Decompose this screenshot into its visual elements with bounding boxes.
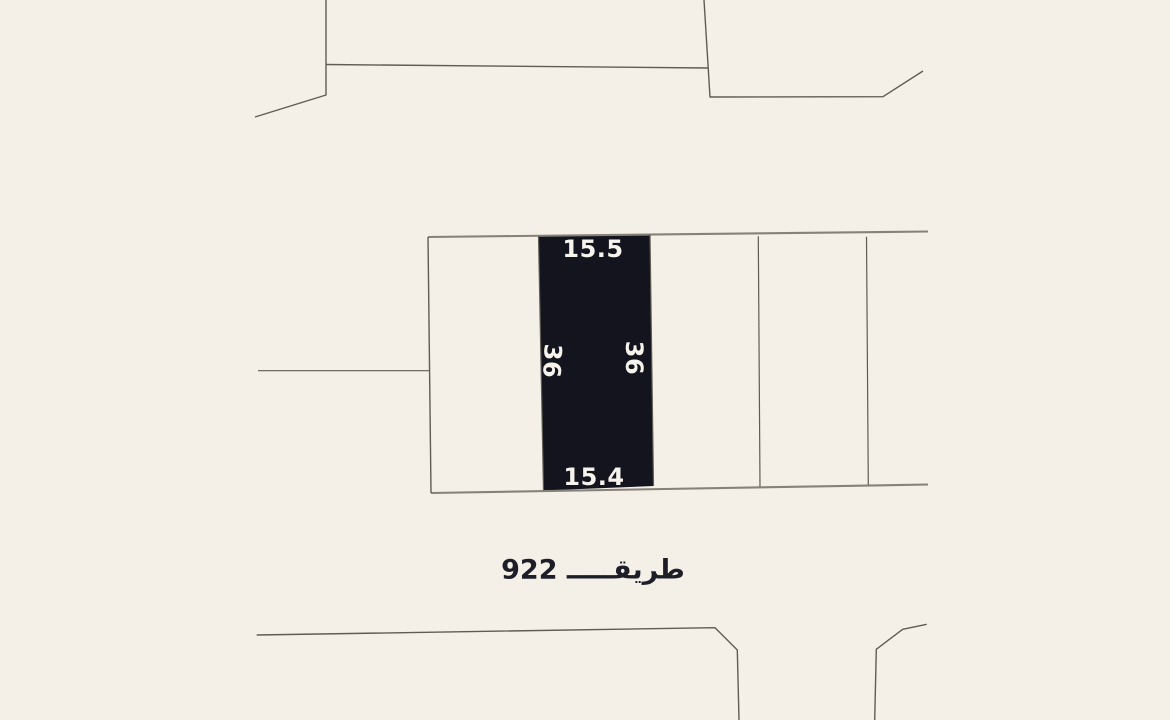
cadastral-map[interactable]: 15.5 15.4 36 36 طريقـــــ 922	[0, 0, 1170, 720]
map-canvas[interactable]	[0, 0, 1170, 720]
parcel-boundary-top-middle	[326, 65, 708, 69]
bottom-road-edge	[257, 628, 739, 720]
parcel-boundary-top-right	[704, 0, 923, 97]
block-left-edge	[428, 237, 431, 493]
parcel-dimension-bottom: 15.4	[563, 463, 624, 491]
parcel-boundary-top-left	[255, 0, 326, 117]
parcel-division-line-1	[758, 236, 760, 486]
road-name-label: طريقـــــ 922	[501, 555, 685, 586]
block-bottom-road-edge	[431, 485, 928, 494]
parcel-dimension-left: 36	[537, 343, 567, 379]
parcel-division-line-2	[867, 237, 869, 485]
parcel-dimension-right: 36	[620, 341, 648, 375]
parcel-dimension-top: 15.5	[562, 235, 623, 263]
block-top-road-edge	[428, 232, 928, 238]
parcel-boundary-bottom-right	[875, 624, 927, 720]
